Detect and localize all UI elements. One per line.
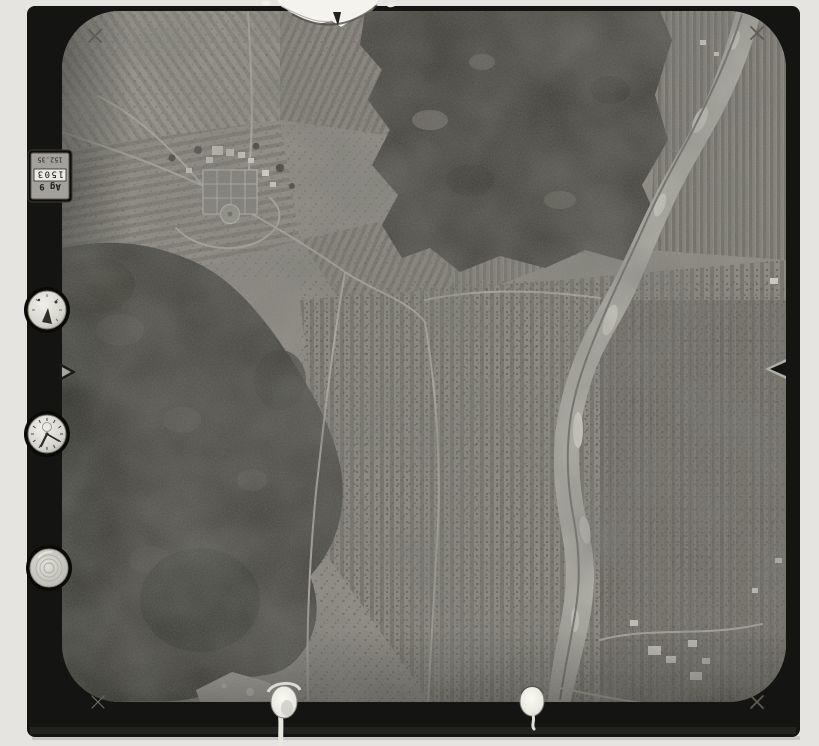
clock-dial [24,411,70,457]
film-frame-bottom-sheen [30,727,796,734]
scanned-aerial-photo-page: Ag 9 1503 152.35 [0,0,819,746]
data-plate: Ag 9 1503 152.35 [28,150,72,202]
photo-emulsion [55,11,786,707]
data-plate-counter: 1503 [36,169,64,179]
aerial-photograph-scan: Ag 9 1503 152.35 [0,0,819,746]
level-dial [26,545,72,591]
photo-grain-texture [62,11,786,702]
data-plate-small-value: 152.35 [37,156,62,164]
data-plate-label: Ag 9 [39,181,61,191]
altimeter-dial [24,287,70,333]
